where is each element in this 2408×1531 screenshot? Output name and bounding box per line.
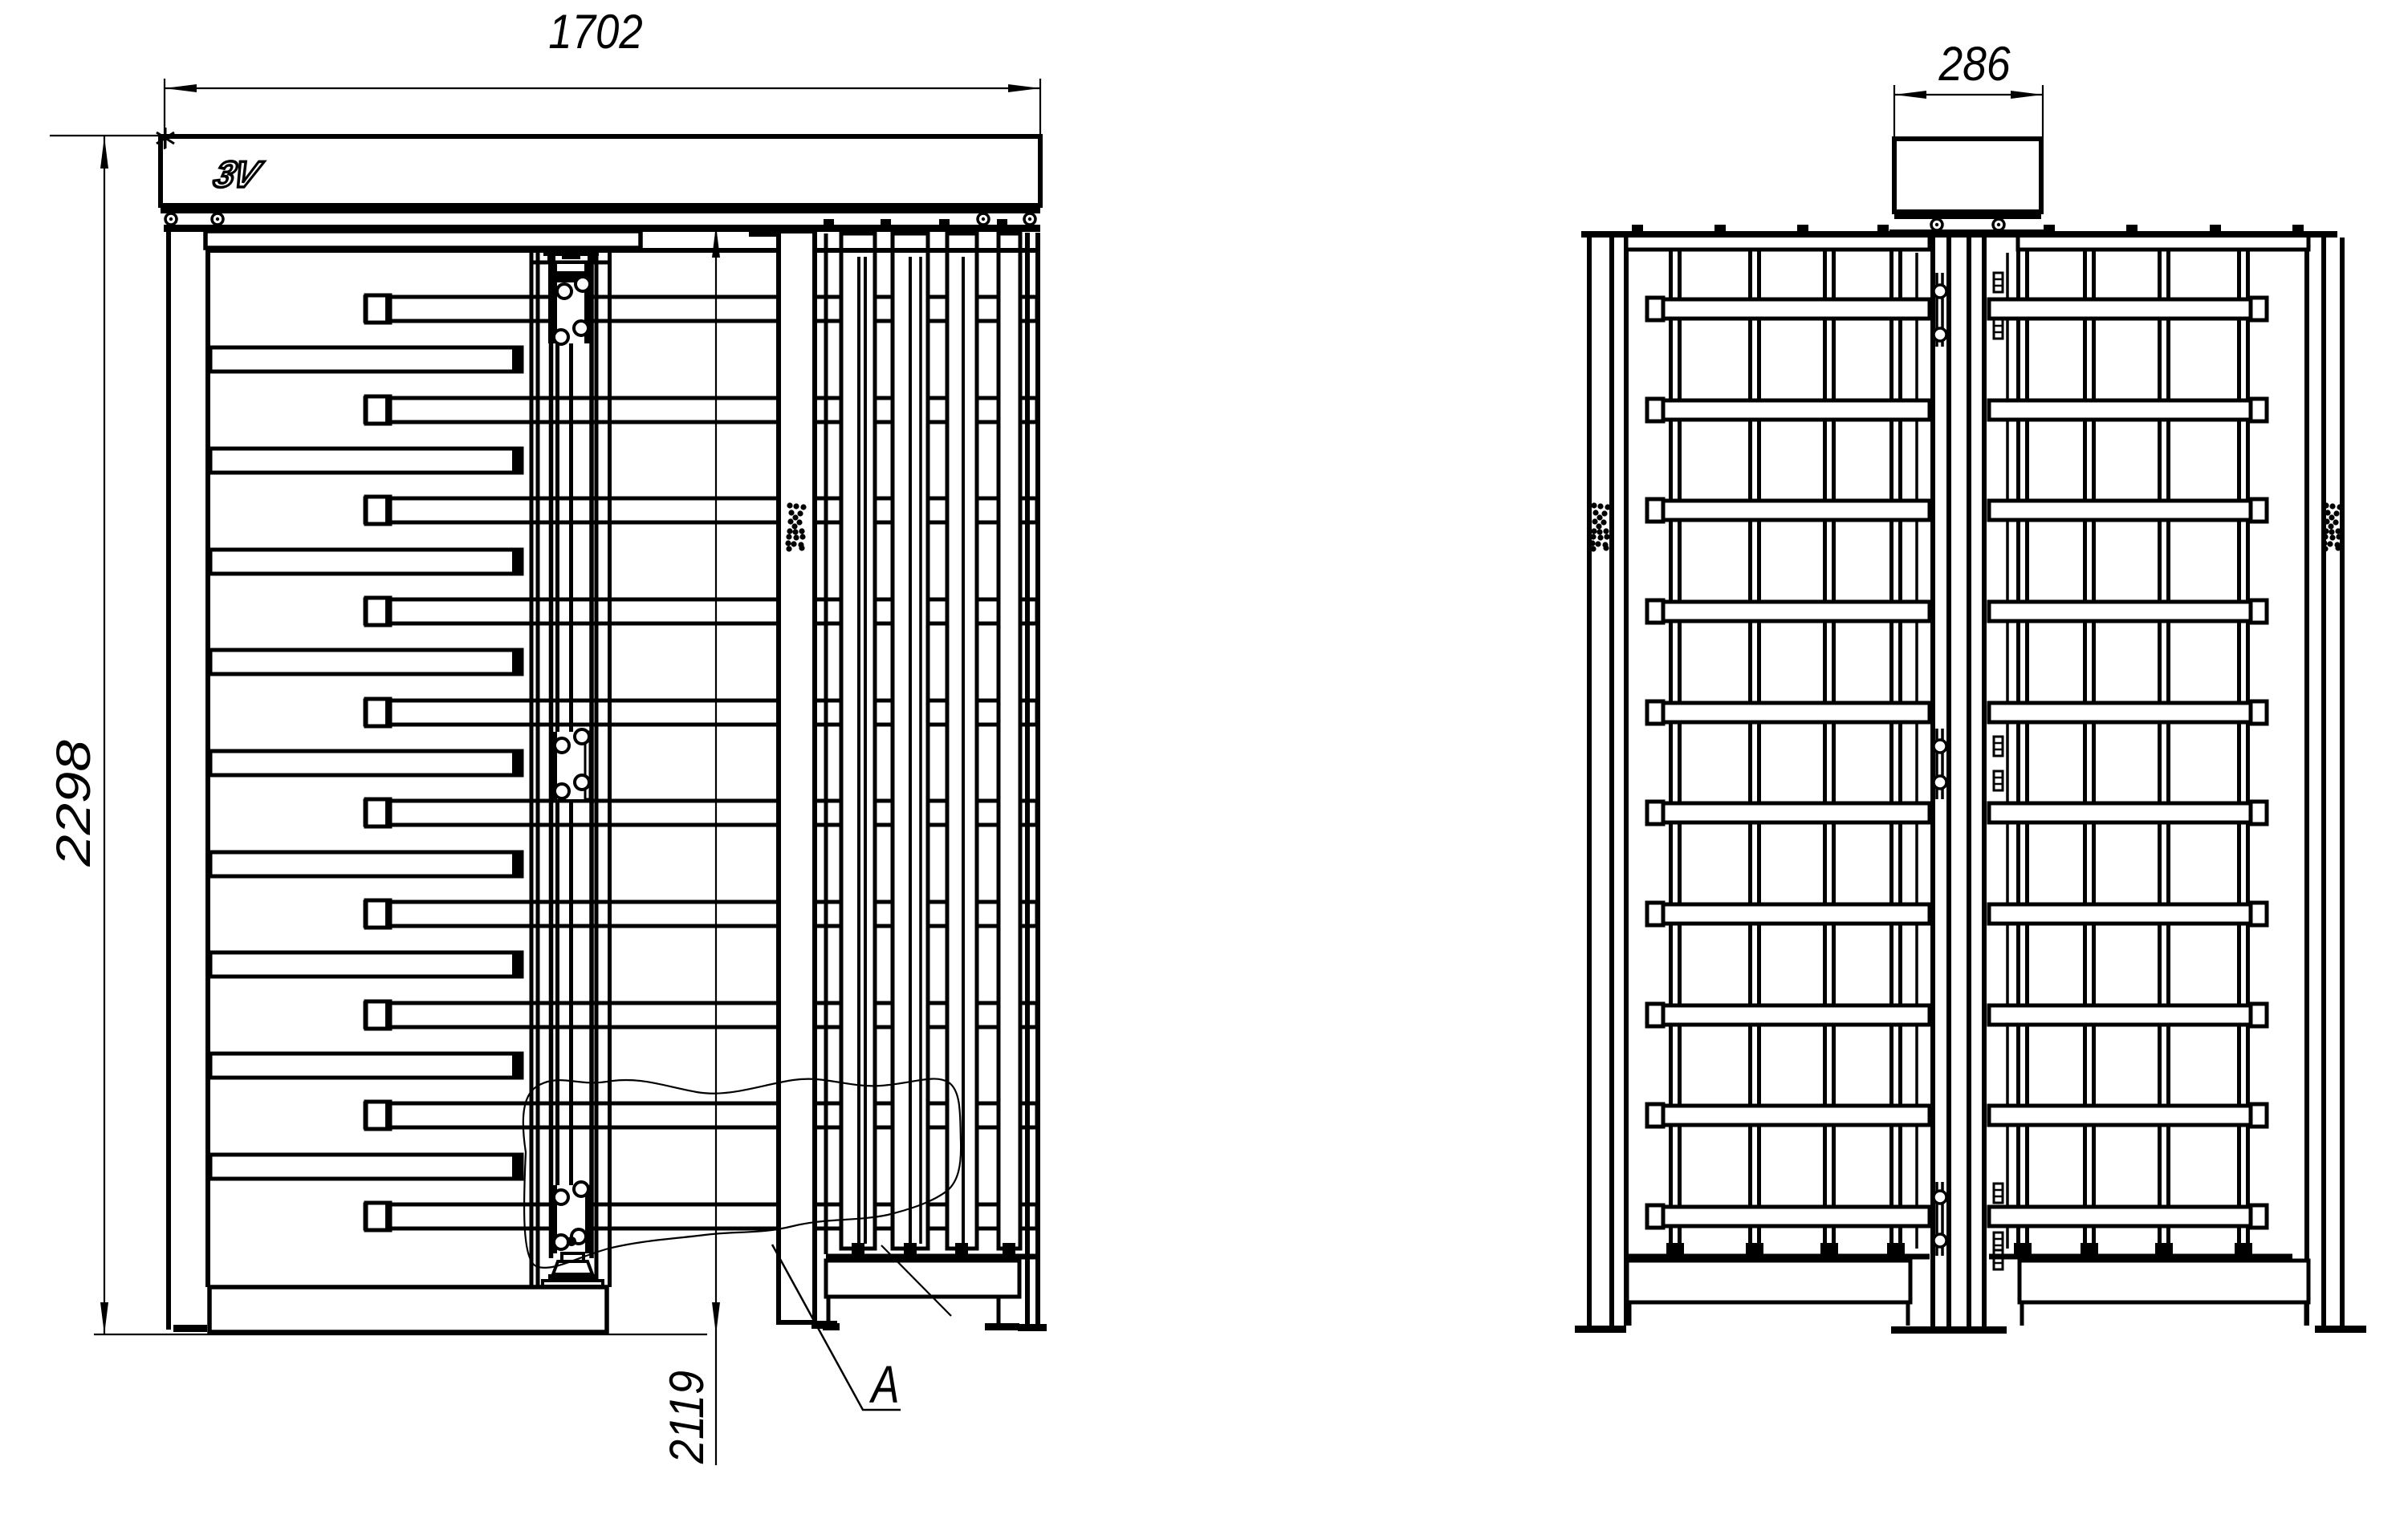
svg-text:2119: 2119: [660, 1371, 714, 1464]
svg-text:2298: 2298: [47, 740, 100, 867]
svg-text:1702: 1702: [548, 5, 642, 59]
svg-text:286: 286: [1938, 38, 2011, 91]
svg-text:A: A: [869, 1354, 900, 1414]
